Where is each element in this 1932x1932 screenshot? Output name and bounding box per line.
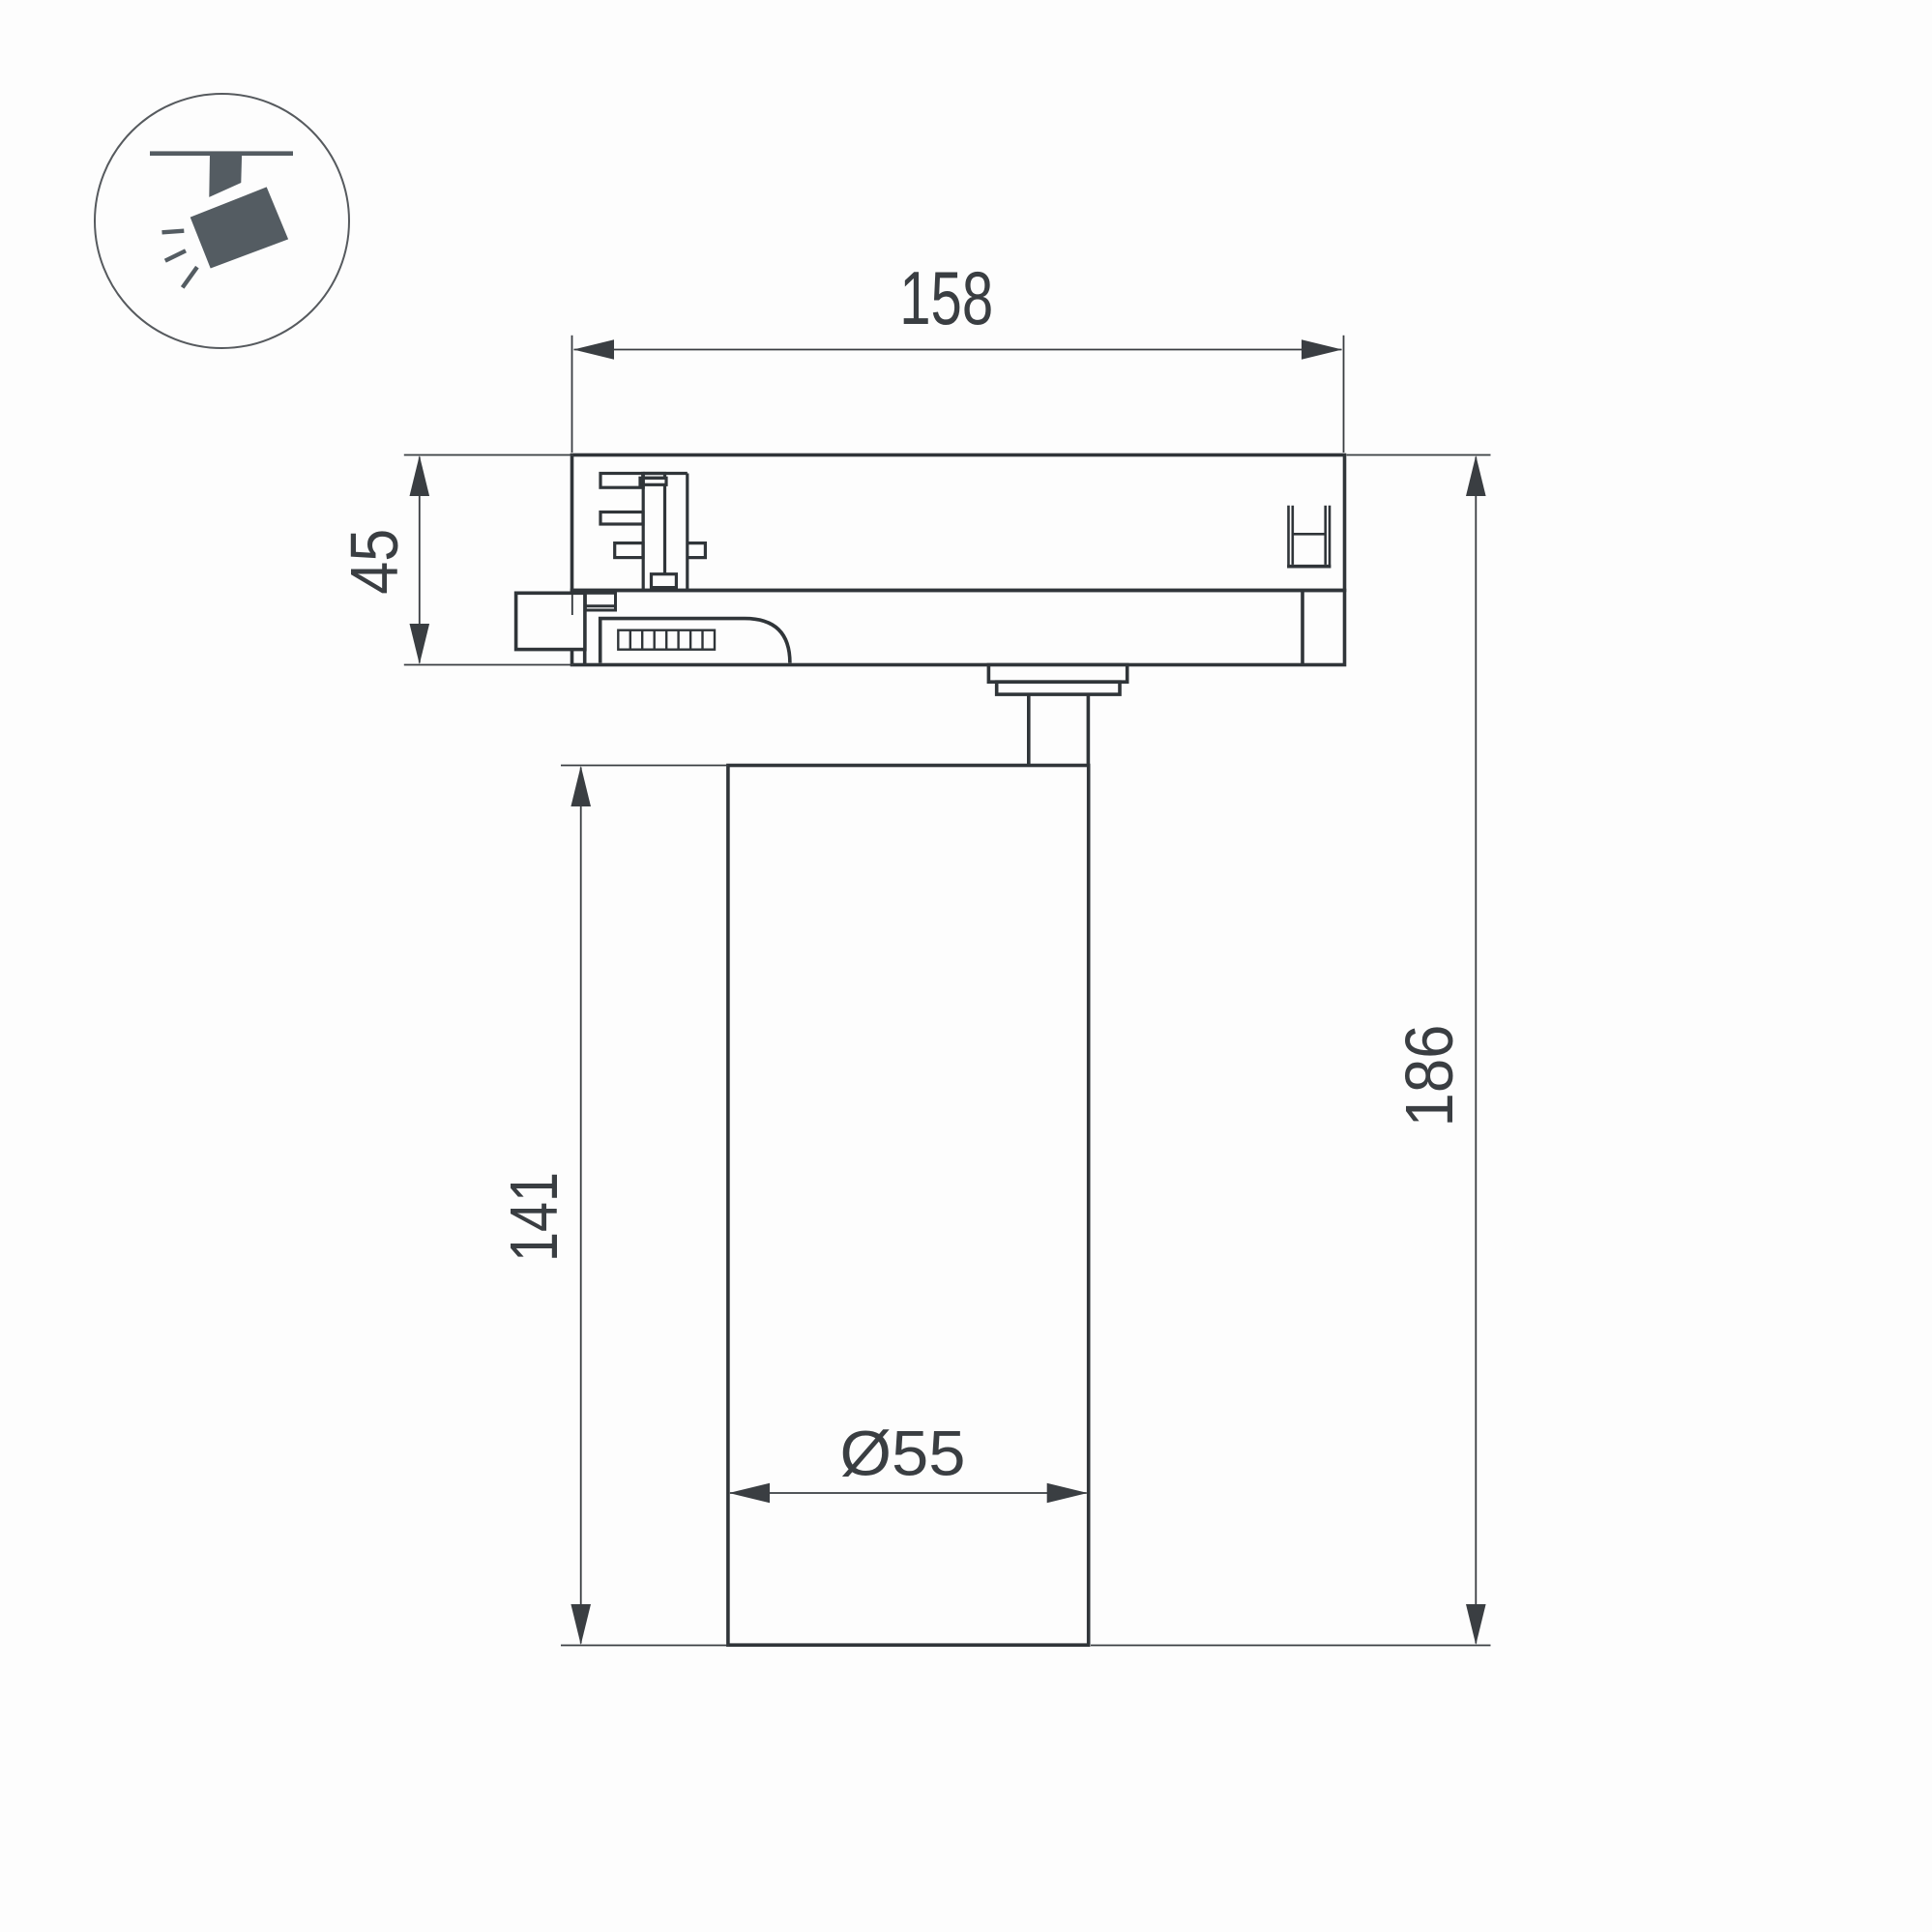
svg-text:158: 158: [899, 255, 993, 340]
svg-text:141: 141: [496, 1172, 571, 1262]
svg-text:45: 45: [337, 529, 412, 595]
svg-text:Ø55: Ø55: [840, 1418, 966, 1489]
svg-text:186: 186: [1391, 1025, 1467, 1127]
